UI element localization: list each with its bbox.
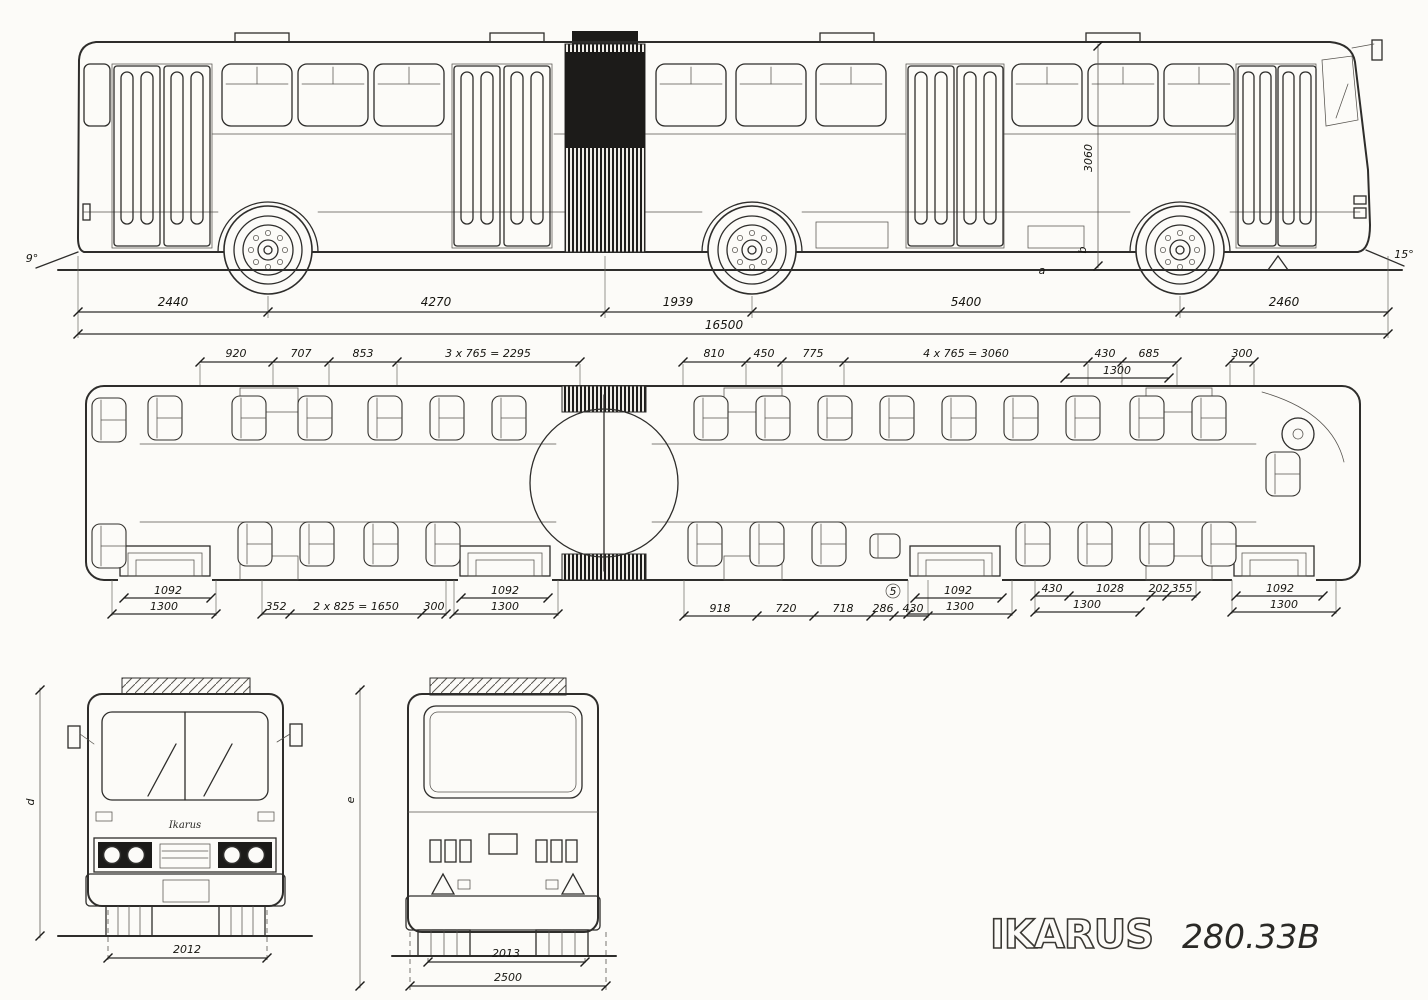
wheel-rear (224, 206, 312, 294)
headlight (104, 847, 121, 864)
headlight (1354, 208, 1366, 218)
window (374, 64, 444, 126)
door-front (1236, 64, 1316, 248)
seat (1078, 522, 1112, 566)
dim-label: 1092 (491, 584, 519, 597)
dim-label: 707 (291, 347, 312, 360)
dim-label: 918 (710, 602, 731, 615)
rear-view: e 2013 2500 (344, 678, 616, 991)
jack-point-marker (1268, 256, 1288, 270)
turn-signal (1354, 196, 1366, 204)
seat (1004, 396, 1038, 440)
dim-label: 300 (1232, 347, 1253, 360)
model-number: 280.33B (1182, 917, 1320, 956)
door-2 (906, 64, 1004, 248)
window (84, 64, 110, 126)
seat-single (870, 534, 900, 558)
dim-label: 718 (833, 602, 854, 615)
seat (238, 522, 272, 566)
roof-vent (490, 33, 544, 42)
hazard-triangle (562, 874, 584, 894)
plan-door-rear (118, 546, 212, 584)
tail-lamp (458, 880, 470, 889)
underbody-box (816, 222, 888, 248)
window (816, 64, 886, 126)
blueprint-svg: 9° 15° 3060 a b 2440 4270 1939 5400 2460… (0, 0, 1428, 1000)
seat (880, 396, 914, 440)
seat (1192, 396, 1226, 440)
mirror-left (68, 726, 80, 748)
door-3 (452, 64, 552, 248)
wheel-middle (708, 206, 796, 294)
seat (694, 396, 728, 440)
roof-vent (1086, 33, 1140, 42)
marker-light (258, 812, 274, 821)
seat (818, 396, 852, 440)
underbody-box (1028, 226, 1084, 248)
seat (364, 522, 398, 566)
dim-label: 2460 (1269, 295, 1300, 309)
license-plate (163, 880, 209, 902)
dim-label: 2440 (158, 295, 189, 309)
approach-ramp (36, 252, 78, 268)
roof-vent (820, 33, 874, 42)
seat (300, 522, 334, 566)
dim-label: 1300 (491, 600, 519, 613)
dim-label: 286 (873, 602, 894, 615)
rear-height-marker: e (344, 796, 357, 803)
dim-label: 920 (226, 347, 247, 360)
height-dim-label: 3060 (1082, 144, 1095, 172)
ref-number: 5 (890, 585, 897, 598)
window (222, 64, 292, 126)
dim-label: 1300 (946, 600, 974, 613)
plan-door-3 (458, 546, 552, 584)
seat (688, 522, 722, 566)
dim-label: 685 (1139, 347, 1160, 360)
mirror-right (290, 724, 302, 746)
total-length-label: 16500 (705, 318, 744, 332)
seat (426, 522, 460, 566)
engine-vents (430, 840, 577, 862)
dim-label: 5400 (951, 295, 982, 309)
dim-label: 1939 (663, 295, 694, 309)
dim-label: 1092 (154, 584, 182, 597)
dim-label: 4 x 765 = 3060 (923, 347, 1009, 360)
seat (1066, 396, 1100, 440)
dim-label: 3 x 765 = 2295 (445, 347, 531, 360)
seat (92, 398, 126, 442)
wiper-right (204, 744, 232, 796)
seat (368, 396, 402, 440)
front-wheels (106, 906, 265, 936)
front-bumper (86, 874, 285, 906)
seat (756, 396, 790, 440)
dim-label: 2 x 825 = 1650 (313, 600, 399, 613)
window (656, 64, 726, 126)
wheel-front (1136, 206, 1224, 294)
seats (92, 396, 1300, 568)
seat (1140, 522, 1174, 566)
door-rear (112, 64, 212, 248)
wiper-left (148, 744, 176, 796)
dim-label: 430 (1042, 582, 1063, 595)
dim-label: 810 (704, 347, 725, 360)
plan-top-dimensions: 920 707 853 3 x 765 = 2295 810 450 775 4… (196, 347, 1259, 386)
engine-lid-handle (489, 834, 517, 854)
dim-label: 775 (803, 347, 824, 360)
headlight (128, 847, 145, 864)
side-view: 9° 15° 3060 a b 2440 4270 1939 5400 2460… (26, 31, 1414, 339)
dim-label: 1300 (1073, 598, 1101, 611)
headlight (248, 847, 265, 864)
marker-light (96, 812, 112, 821)
front-track-label: 2012 (173, 943, 201, 956)
headlight (224, 847, 241, 864)
departure-angle-label: 15° (1394, 248, 1414, 261)
seat (92, 524, 126, 568)
seat (750, 522, 784, 566)
plan-bottom-dimensions: 1092 1300 352 2 x 825 = 1650 300 1092 13… (108, 580, 1341, 621)
dim-label: 1300 (1270, 598, 1298, 611)
dim-label: 1300 (150, 600, 178, 613)
seat (1202, 522, 1236, 566)
window (1012, 64, 1082, 126)
articulation-bellows (565, 44, 645, 252)
seat (232, 396, 266, 440)
dim-label: 1092 (1266, 582, 1294, 595)
mirror (1372, 40, 1382, 60)
driver-seat (1266, 452, 1300, 496)
rear-window (424, 706, 582, 798)
front-height-marker: d (24, 797, 37, 805)
front-view: d Ikarus 2012 (24, 678, 312, 964)
roof-vent (235, 33, 289, 42)
dim-label: 430 (903, 602, 924, 615)
plan-door-2 (908, 546, 1002, 584)
front-badge: Ikarus (168, 820, 201, 831)
dim-label: 720 (776, 602, 797, 615)
dim-label: 1092 (944, 584, 972, 597)
dim-label: 4270 (421, 295, 452, 309)
rear-track-label: 2013 (492, 947, 520, 960)
title-block: IKARUS 280.33B (990, 912, 1320, 958)
roof-hatch (430, 678, 566, 695)
window (298, 64, 368, 126)
plan-door-front (1232, 546, 1316, 584)
rear-bumper (406, 896, 600, 930)
blueprint-sheet: 9° 15° 3060 a b 2440 4270 1939 5400 2460… (0, 0, 1428, 1000)
window (1164, 64, 1234, 126)
marker-a: a (1039, 264, 1046, 277)
steering-wheel (1282, 418, 1314, 450)
dim-label: 430 (1095, 347, 1116, 360)
dim-label: 1028 (1096, 582, 1124, 595)
seat (430, 396, 464, 440)
hazard-triangle (432, 874, 454, 894)
dim-label: 300 (424, 600, 445, 613)
seat (1130, 396, 1164, 440)
plan-view: 920 707 853 3 x 765 = 2295 810 450 775 4… (86, 347, 1360, 621)
dim-label: 450 (754, 347, 775, 360)
marker-b: b (1076, 246, 1089, 253)
ikarus-logo: IKARUS (990, 912, 1158, 958)
rear-width-label: 2500 (494, 971, 522, 984)
dim-label: 202 (1149, 582, 1170, 595)
dim-label: 1300 (1103, 364, 1131, 377)
approach-angle-label: 9° (26, 252, 39, 265)
wiper (1336, 84, 1348, 118)
dim-label: 352 (266, 600, 287, 613)
window (736, 64, 806, 126)
seat (1016, 522, 1050, 566)
window (1088, 64, 1158, 126)
seat (298, 396, 332, 440)
seat (148, 396, 182, 440)
seat (492, 396, 526, 440)
dim-label: 853 (353, 347, 374, 360)
windshield (1322, 56, 1358, 126)
roof-hatch (122, 678, 250, 694)
dim-label: 355 (1172, 582, 1193, 595)
seat (942, 396, 976, 440)
seat (812, 522, 846, 566)
tail-lamp (546, 880, 558, 889)
